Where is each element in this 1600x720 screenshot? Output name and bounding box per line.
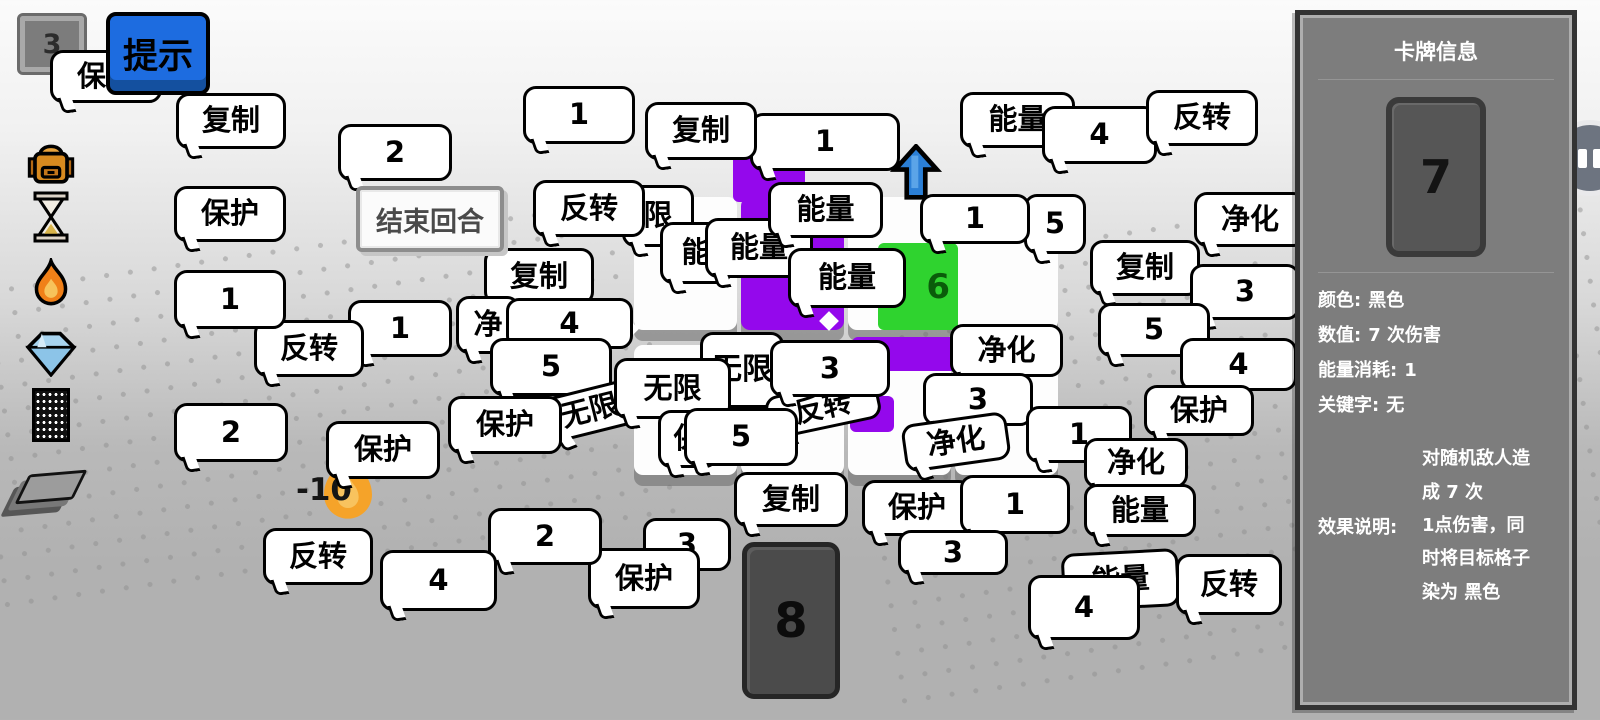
speech-bubble: 1 <box>750 113 900 171</box>
end-turn-button[interactable]: 结束回合 <box>356 186 504 252</box>
card-field: 颜色:黑色 <box>1318 283 1554 318</box>
hint-button[interactable]: 提示 <box>106 12 210 95</box>
bubble-text: 反转 <box>289 542 347 572</box>
card-effect: 效果说明: 对随机敌人造 成 7 次 1点伤害，同 时将目标格子 染为 黑色 <box>1318 436 1554 608</box>
speech-bubble: 5 <box>684 408 798 466</box>
bubble-text: 复制 <box>202 106 260 136</box>
field-label: 数值: <box>1318 318 1361 353</box>
speech-bubble: 1 <box>174 270 286 329</box>
bubble-text: 3 <box>820 354 840 384</box>
bubble-text: 无限 <box>643 374 701 404</box>
field-label: 颜色: <box>1318 283 1361 318</box>
bubble-text: 反转 <box>1200 570 1258 600</box>
bubble-text: 2 <box>535 522 555 552</box>
speech-bubble: 5 <box>1024 194 1086 254</box>
speech-bubble: 反转 <box>533 180 645 237</box>
field-value: 无 <box>1386 388 1404 423</box>
bubble-text: 复制 <box>1116 253 1174 283</box>
bubble-text: 净化 <box>977 336 1035 366</box>
speech-bubble: 1 <box>523 86 635 144</box>
backpack-button[interactable] <box>20 134 82 192</box>
bubble-text: 反转 <box>560 194 618 224</box>
speech-bubble: 4 <box>1180 338 1297 391</box>
bubble-text: 能量 <box>818 263 876 293</box>
bubble-text: 保护 <box>476 410 534 440</box>
card-field: 能量消耗:1 <box>1318 353 1554 388</box>
speech-bubble: 复制 <box>734 472 848 527</box>
speech-bubble: 净化 <box>1084 438 1188 488</box>
bubble-text: 5 <box>1144 315 1164 345</box>
speech-bubble: 4 <box>1042 106 1157 164</box>
speech-bubble: 能量 <box>788 248 906 308</box>
bubble-text: 净化 <box>1107 448 1165 478</box>
bubble-text: 5 <box>731 422 751 452</box>
bubble-text: 净化 <box>1221 205 1279 235</box>
field-label: 能量消耗: <box>1318 353 1397 388</box>
hourglass-icon <box>27 190 75 248</box>
noise-card-icon <box>32 388 70 442</box>
end-turn-label: 结束回合 <box>376 200 484 239</box>
speech-bubble: 保护 <box>1144 385 1254 436</box>
game-screen: { "hud": { "counter": "3", "hint_button"… <box>0 0 1600 720</box>
speech-bubble: 保护 <box>862 480 972 536</box>
bubble-text: 1 <box>965 204 985 234</box>
speech-bubble: 3 <box>770 340 890 397</box>
card-info-panel: 卡牌信息 7 颜色:黑色数值:7 次伤害能量消耗:1关键字:无 效果说明: 对随… <box>1295 10 1577 710</box>
speech-bubble: 保护 <box>448 396 562 454</box>
backpack-icon <box>24 135 78 191</box>
bubble-text: 1 <box>1005 490 1025 520</box>
deck-button[interactable] <box>20 458 82 516</box>
bubble-text: 4 <box>1089 120 1109 150</box>
speech-bubble: 保护 <box>174 186 286 242</box>
field-value: 黑色 <box>1368 283 1404 318</box>
panel-card-preview: 7 <box>1386 97 1486 257</box>
bubble-text: 保护 <box>201 199 259 229</box>
bubble-text: 无限 <box>558 390 621 433</box>
card-field: 数值:7 次伤害 <box>1318 318 1554 353</box>
bubble-text: 复制 <box>762 485 820 515</box>
speech-bubble: 2 <box>338 124 452 181</box>
bubble-text: 2 <box>385 138 405 168</box>
speech-bubble: 净化 <box>950 324 1063 377</box>
speech-bubble: 能量 <box>768 182 883 238</box>
fire-button[interactable] <box>20 258 82 316</box>
field-value: 7 次伤害 <box>1368 318 1441 353</box>
speech-bubble: 保护 <box>588 548 700 609</box>
diamond-icon <box>23 329 79 381</box>
hourglass-button[interactable] <box>20 190 82 248</box>
bubble-text: 4 <box>1228 350 1248 380</box>
card-fields: 颜色:黑色数值:7 次伤害能量消耗:1关键字:无 <box>1318 273 1554 423</box>
speech-bubble: 1 <box>960 475 1070 534</box>
bubble-text: 净 <box>473 310 502 340</box>
speech-bubble: 1 <box>920 194 1030 244</box>
bubble-text: 1 <box>390 314 410 344</box>
fire-icon <box>26 258 76 316</box>
bubble-text: 反转 <box>280 334 338 364</box>
field-value: 1 <box>1404 353 1417 388</box>
bubble-text: 4 <box>1074 593 1094 623</box>
bubble-text: 1 <box>220 285 240 315</box>
bubble-text: 1 <box>569 100 589 130</box>
bubble-text: 1 <box>815 127 835 157</box>
bubble-text: 反转 <box>1173 103 1231 133</box>
bubble-text: 能量 <box>988 105 1046 135</box>
speech-bubble: 反转 <box>1146 90 1258 146</box>
speech-bubble: 2 <box>488 508 602 565</box>
deck-icon <box>14 470 87 505</box>
speech-bubble: 复制 <box>176 93 286 149</box>
speech-bubble: 2 <box>174 403 288 462</box>
bubble-text: 能量 <box>796 195 854 225</box>
bubble-text: 5 <box>541 352 561 382</box>
bubble-text: 净化 <box>925 423 987 460</box>
diamond-button[interactable] <box>20 326 82 384</box>
panel-title: 卡牌信息 <box>1318 27 1554 80</box>
bubble-text: 复制 <box>510 262 568 292</box>
hint-button-label: 提示 <box>123 28 193 79</box>
bubble-text: 4 <box>559 309 579 339</box>
panel-card-value: 7 <box>1420 150 1452 204</box>
bubble-text: 3 <box>1235 277 1255 307</box>
bubble-text: 保护 <box>1170 396 1228 426</box>
speech-bubble: 能量 <box>1084 484 1196 537</box>
speech-bubble: 保护 <box>326 421 440 479</box>
bubble-text: 2 <box>221 418 241 448</box>
pause-icon <box>1578 149 1587 168</box>
speech-bubble: 复制 <box>1090 240 1200 296</box>
speech-bubble: 4 <box>380 550 497 611</box>
bubble-text: 能量 <box>1111 496 1169 526</box>
bubble-text: 3 <box>968 385 988 415</box>
bubble-text: 保护 <box>888 493 946 523</box>
speech-bubble: 反转 <box>263 528 373 585</box>
bubble-text: 3 <box>943 538 963 568</box>
noise-card-button[interactable] <box>20 386 82 444</box>
speech-bubble: 净化 <box>1194 192 1306 247</box>
effect-value: 对随机敌人造 成 7 次 1点伤害，同 时将目标格子 染为 黑色 <box>1422 442 1530 608</box>
bubble-text: 保护 <box>615 564 673 594</box>
speech-bubble: 4 <box>1028 575 1140 640</box>
effect-label: 效果说明: <box>1318 442 1422 608</box>
hand-card[interactable]: 8 <box>742 542 840 699</box>
speech-bubble: 复制 <box>645 102 757 160</box>
speech-bubble: 3 <box>898 530 1008 575</box>
bubble-text: 保护 <box>354 435 412 465</box>
bubble-text: 4 <box>428 566 448 596</box>
card-field: 关键字:无 <box>1318 388 1554 423</box>
field-label: 关键字: <box>1318 388 1379 423</box>
speech-bubble: 反转 <box>1176 554 1282 615</box>
hand-card-value: 8 <box>774 593 807 649</box>
bubble-text: 5 <box>1045 209 1065 239</box>
bubble-text: 复制 <box>672 116 730 146</box>
